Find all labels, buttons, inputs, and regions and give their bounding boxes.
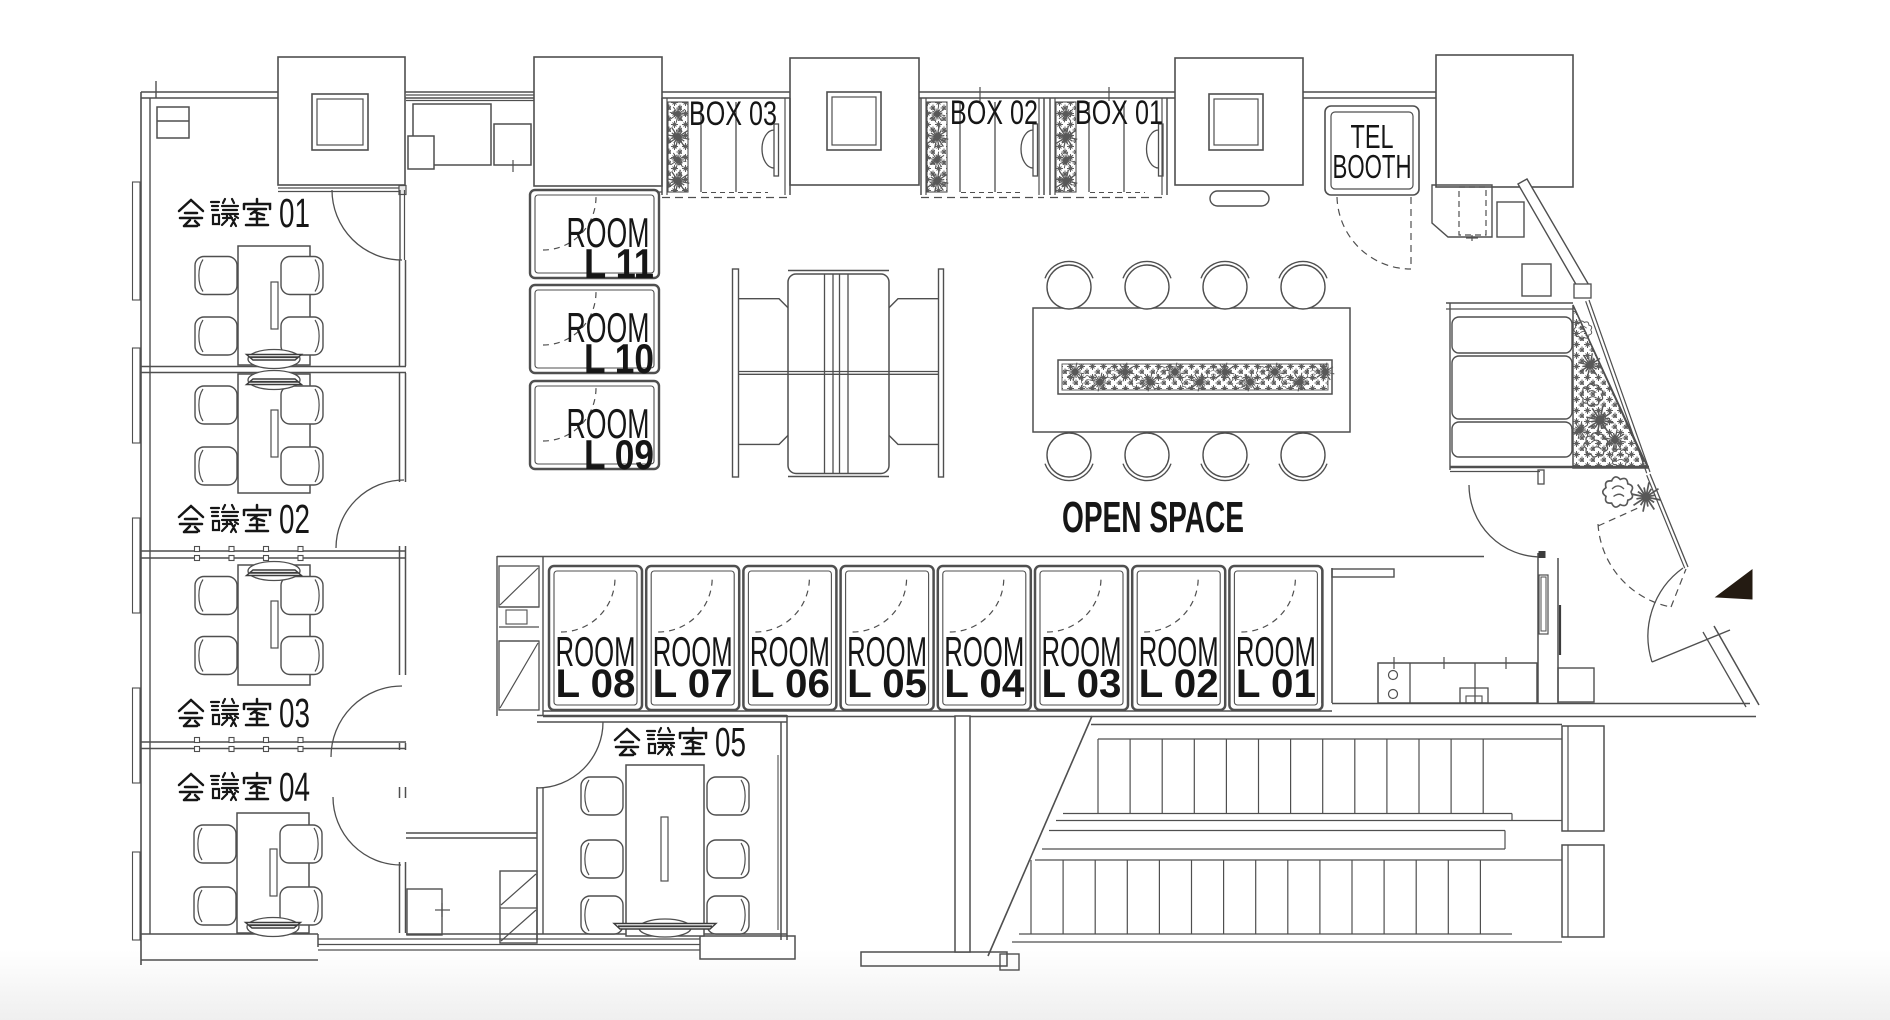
svg-text:BOX 02: BOX 02 — [950, 94, 1038, 132]
svg-text:L 02: L 02 — [1139, 662, 1219, 706]
svg-text:L 04: L 04 — [944, 662, 1025, 706]
svg-text:L 10: L 10 — [584, 335, 654, 382]
svg-text:02: 02 — [279, 496, 310, 542]
svg-text:L 08: L 08 — [556, 662, 636, 706]
svg-text:L 07: L 07 — [653, 662, 733, 706]
svg-text:BOX 01: BOX 01 — [1075, 94, 1163, 132]
svg-text:01: 01 — [279, 190, 310, 236]
svg-text:03: 03 — [279, 690, 310, 736]
svg-text:04: 04 — [279, 764, 310, 810]
svg-text:L 03: L 03 — [1042, 662, 1122, 706]
svg-text:L 09: L 09 — [584, 431, 654, 478]
svg-text:BOOTH: BOOTH — [1333, 148, 1412, 185]
svg-text:BOX 03: BOX 03 — [689, 95, 777, 133]
svg-text:L 11: L 11 — [584, 240, 654, 287]
svg-text:OPEN SPACE: OPEN SPACE — [1062, 493, 1244, 542]
svg-text:L 05: L 05 — [847, 662, 927, 706]
svg-text:L 06: L 06 — [750, 662, 830, 706]
svg-text:L 01: L 01 — [1236, 662, 1316, 706]
svg-text:05: 05 — [715, 719, 746, 765]
